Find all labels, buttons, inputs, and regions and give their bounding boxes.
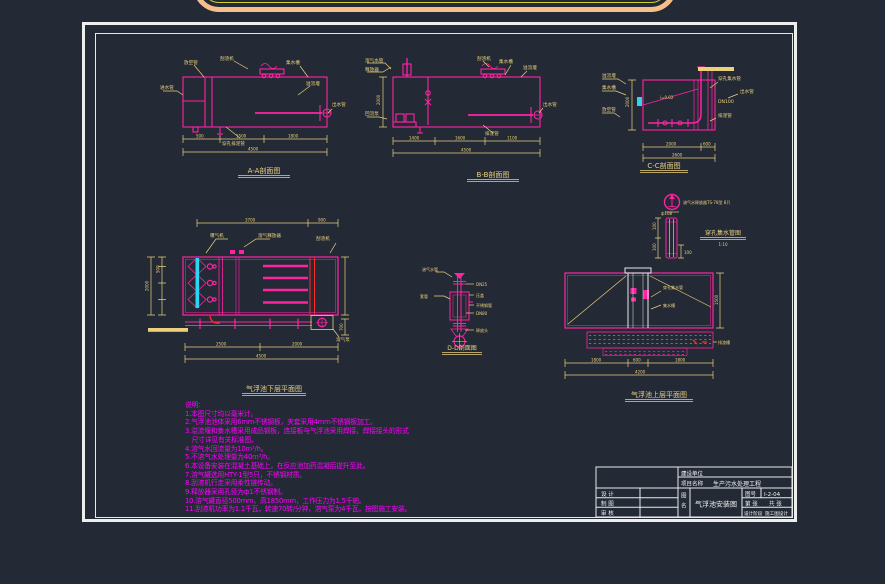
north-label: 溶气水释放器TS-78型 8只 [683, 199, 730, 205]
caption-underline [640, 171, 688, 173]
caption-underline [625, 400, 693, 402]
leader-label: 释放头 [476, 327, 488, 333]
dim-label: 1500 [236, 134, 247, 139]
leader-label: 溶气水管 [422, 266, 438, 272]
section-aa-caption: A-A剖面图 [248, 166, 281, 175]
slope-label: i=0.02 [660, 95, 674, 100]
pipe-detail-scale: 1:10 [719, 242, 728, 247]
dim-label: 1600 [455, 136, 466, 141]
leader-label: 放空管 [184, 59, 198, 66]
leader-label: 溶气释放器 [258, 232, 281, 239]
sheet-total-label: 共 张 [769, 500, 782, 508]
leader-label: 释放器 [365, 66, 379, 73]
review-label: 审 核 [601, 509, 614, 517]
leader-label: 穿孔集水管 [663, 284, 683, 290]
section-bb-caption: B-B剖面图 [477, 170, 510, 179]
leader-label: 放空管 [602, 106, 616, 113]
pipe-detail-caption: 穿孔集水管图 [705, 229, 741, 237]
leader-label: 溢流堰 [523, 64, 537, 71]
leader-label: 集水槽 [602, 84, 616, 91]
dim-label: 100 [652, 243, 657, 251]
tank-outline [183, 64, 331, 135]
leader-lines [163, 61, 332, 156]
note-line: 2.气浮池池体采用6mm不锈钢板，夹套采用4mm不锈钢板加工。 [185, 418, 433, 427]
dim-label: 700 [339, 323, 344, 331]
stage-label: 设计阶段 [744, 510, 763, 517]
leader-label: 集水槽 [663, 302, 675, 308]
tank-outline [643, 67, 715, 130]
dim-label: 600 [633, 358, 641, 363]
dim-label: 500 [156, 265, 161, 273]
dim-label: 1500 [714, 294, 719, 305]
dim-label: 4200 [635, 370, 646, 375]
lower-plan-caption: 气浮池下层平面图 [246, 384, 302, 393]
caption-underline [238, 176, 290, 178]
dim-label: 2000 [292, 342, 303, 347]
leader-label: 曝气机 [210, 232, 224, 239]
notes-title: 说明: [185, 401, 433, 410]
aerator-bars [196, 250, 245, 308]
draft-label: 制 图 [601, 500, 614, 508]
leader-label: 溢流堰 [306, 80, 320, 87]
title-block: 建设单位 项目名称 生产污水处理工程 设 计 制 图 审 核 图 名 气浮池安装… [593, 464, 795, 520]
section-dd-caption: D-D剖面图 [447, 344, 476, 352]
leader-label: 穿孔集水管 [718, 75, 741, 82]
dim-label: 600 [703, 142, 711, 147]
dim-label: 1800 [288, 134, 299, 139]
leader-label: DN80 [476, 311, 488, 316]
upper-plan-view: 溶气水释放器TS-78型 8只 ф108 100 100 100 穿孔集水管图 … [555, 185, 792, 410]
name-label-char1: 图 [681, 492, 687, 500]
leader-label: DN25 [476, 282, 488, 287]
tank-outline [393, 58, 542, 133]
drawing-number: I-2-04 [764, 492, 781, 498]
note-line: 11.刮渣机功率为1.1千瓦，转速70转/分钟，溶气泵为4千瓦，按图施工安装。 [185, 505, 433, 514]
leader-label: 排泥管 [485, 130, 499, 137]
leader-label: 溶气水管 [365, 57, 384, 64]
dim-label: 2000 [625, 96, 630, 107]
project-label: 项目名称 [681, 480, 704, 488]
note-line: 4.溶气水回流量为10m³/h。 [185, 445, 433, 454]
caption-underline [467, 180, 519, 182]
leader-label: 回流泵 [365, 110, 379, 117]
dim-label: 500 [196, 134, 204, 139]
notes-block: 说明: 1.本图尺寸均以毫米计。 2.气浮池池体采用6mm不锈钢板，夹套采用4m… [185, 401, 433, 514]
dim-label: 100 [684, 250, 692, 255]
section-cc-caption: C-C剖面图 [647, 161, 680, 170]
number-label: 图号 [745, 490, 757, 498]
dim-label: 1100 [507, 136, 518, 141]
section-bb-view: 溶气水管 释放器 回流泵 刮渣机 集水槽 溢流堰 出水管 排泥管 1400 16… [365, 55, 565, 190]
note-line: 8.刮渣机行走采用柔性链传动。 [185, 479, 433, 488]
leader-label: 溢流堰 [602, 72, 616, 79]
leader-label: 压盖 [476, 292, 484, 298]
dim-label: 4500 [461, 148, 472, 153]
dim-label: 900 [318, 218, 326, 223]
note-line: 尺寸详见有关标准图。 [185, 436, 433, 445]
name-label-char2: 名 [681, 502, 687, 510]
leader-label: 排渣槽 [718, 339, 730, 345]
dim-label: 2000 [145, 280, 150, 291]
leader-label: DN100 [718, 99, 734, 105]
leader-label: 刮渣机 [220, 55, 234, 62]
project-name: 生产污水处理工程 [713, 480, 761, 488]
leader-label: 溶气泵 [336, 336, 350, 343]
sheet-no-label: 第 张 [745, 500, 758, 508]
dim-label: 3700 [245, 218, 256, 223]
caption-underline [242, 394, 306, 396]
caption-underline [700, 238, 746, 240]
stage-value: 施工图设计 [765, 510, 788, 517]
note-line: 6.本设备安装在混凝土基础上，在反应池加药混凝后提升至此。 [185, 462, 433, 471]
dim-label: 2500 [216, 342, 227, 347]
dim-label: 100 [652, 222, 657, 230]
walkway-bar [698, 67, 734, 71]
dim-label: 1400 [409, 136, 420, 141]
upper-plan-caption: 气浮池上层平面图 [631, 390, 687, 399]
owner-label: 建设单位 [681, 470, 704, 478]
dim-label: 2000 [376, 94, 381, 105]
dim-label: 1800 [591, 358, 602, 363]
leader-label: 刮渣机 [316, 235, 330, 242]
inlet-marker [637, 97, 642, 106]
section-dd-view: 溶气水管 套管 DN25 压盖 不锈钢管 DN80 释放头 D-D剖面图 [420, 262, 512, 358]
dim-label: 1800 [675, 358, 686, 363]
section-aa-view: 进水管 放空管 刮渣机 集水槽 溢流堰 出水管 穿孔排泥管 500 1500 1… [160, 55, 360, 185]
note-line: 9.释放器采用孔径为ф1不锈钢制。 [185, 488, 433, 497]
dim-label: 2000 [666, 142, 677, 147]
leader-label: 排泥管 [718, 112, 732, 119]
dim-label: 4500 [248, 147, 259, 152]
note-line: 3.溢流堰和集水槽采用成品钢板，连接板与气浮池采用焊接，焊接接头的形式 [185, 427, 433, 436]
leader-label: 出水管 [543, 101, 557, 108]
dim-label: 4500 [256, 354, 267, 359]
leader-lines [602, 79, 738, 162]
window-bottom-ornament [193, 0, 677, 12]
dim-label: ф108 [661, 211, 673, 216]
leader-label: 穿孔排泥管 [222, 140, 245, 147]
dim-label: 2600 [672, 153, 683, 158]
caption-underline [442, 353, 482, 355]
window-ornament-inner-line [202, 0, 668, 3]
design-label: 设 计 [601, 490, 614, 498]
plan-outline [565, 195, 713, 356]
note-line: 5.不溶气水处理量为40m³/h。 [185, 453, 433, 462]
leader-label: 套管 [420, 293, 428, 299]
drawing-name: 气浮池安装图 [695, 500, 737, 509]
leader-label: 集水槽 [286, 59, 300, 66]
lower-plan-view: 曝气机 溶气释放器 刮渣机 溶气泵 3700 900 500 2000 2500… [140, 195, 360, 400]
section-cc-view: 溢流堰 集水槽 放空管 i=0.02 穿孔集水管 出水管 DN100 排泥管 2… [600, 55, 785, 180]
leader-label: 出水管 [740, 88, 754, 95]
leader-label: 集水槽 [499, 58, 513, 65]
leader-label: 不锈钢管 [476, 302, 492, 308]
leader-label: 刮渣机 [477, 55, 491, 62]
leader-label: 出水管 [332, 101, 346, 108]
leader-label: 进水管 [160, 84, 174, 91]
